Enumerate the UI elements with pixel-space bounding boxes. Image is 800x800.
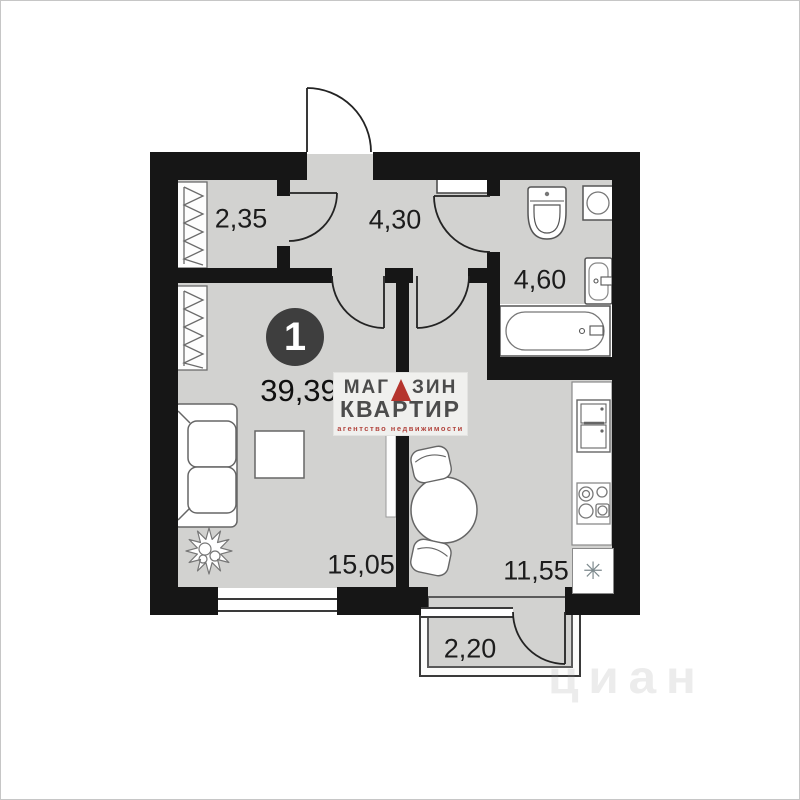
interior-door-arc-icon bbox=[434, 196, 490, 252]
interior-door-arc-icon bbox=[332, 276, 384, 328]
logo-triangle-icon bbox=[391, 379, 411, 401]
total-area-label: 39,39 bbox=[260, 373, 338, 409]
floor-plan: ✳ 2,35 4,30 4,60 15,05 11,55 2,20 1 39,3… bbox=[0, 0, 800, 800]
room-area-label-balcony: 2,20 bbox=[444, 634, 497, 665]
interior-door-arc-icon bbox=[417, 276, 469, 328]
logo-tagline: агентство недвижимости bbox=[337, 424, 464, 433]
room-area-label-wardrobe: 2,35 bbox=[215, 204, 268, 235]
unit-number-badge: 1 bbox=[266, 308, 324, 366]
entry-door-arc-icon bbox=[307, 88, 371, 152]
agency-logo: МАГ ЗИН КВАРТИР агентство недвижимости bbox=[333, 372, 468, 436]
room-area-label-hallway: 4,30 bbox=[369, 205, 422, 236]
site-watermark: циан bbox=[548, 650, 706, 704]
interior-door-arc-icon bbox=[289, 193, 337, 241]
room-area-label-bathroom: 4,60 bbox=[514, 265, 567, 296]
logo-line1: МАГ ЗИН bbox=[344, 375, 458, 397]
logo-word1-left: МАГ bbox=[344, 378, 390, 397]
room-area-label-kitchen: 11,55 bbox=[503, 556, 569, 587]
logo-word1-right: ЗИН bbox=[412, 378, 457, 397]
room-area-label-living: 15,05 bbox=[327, 550, 395, 581]
